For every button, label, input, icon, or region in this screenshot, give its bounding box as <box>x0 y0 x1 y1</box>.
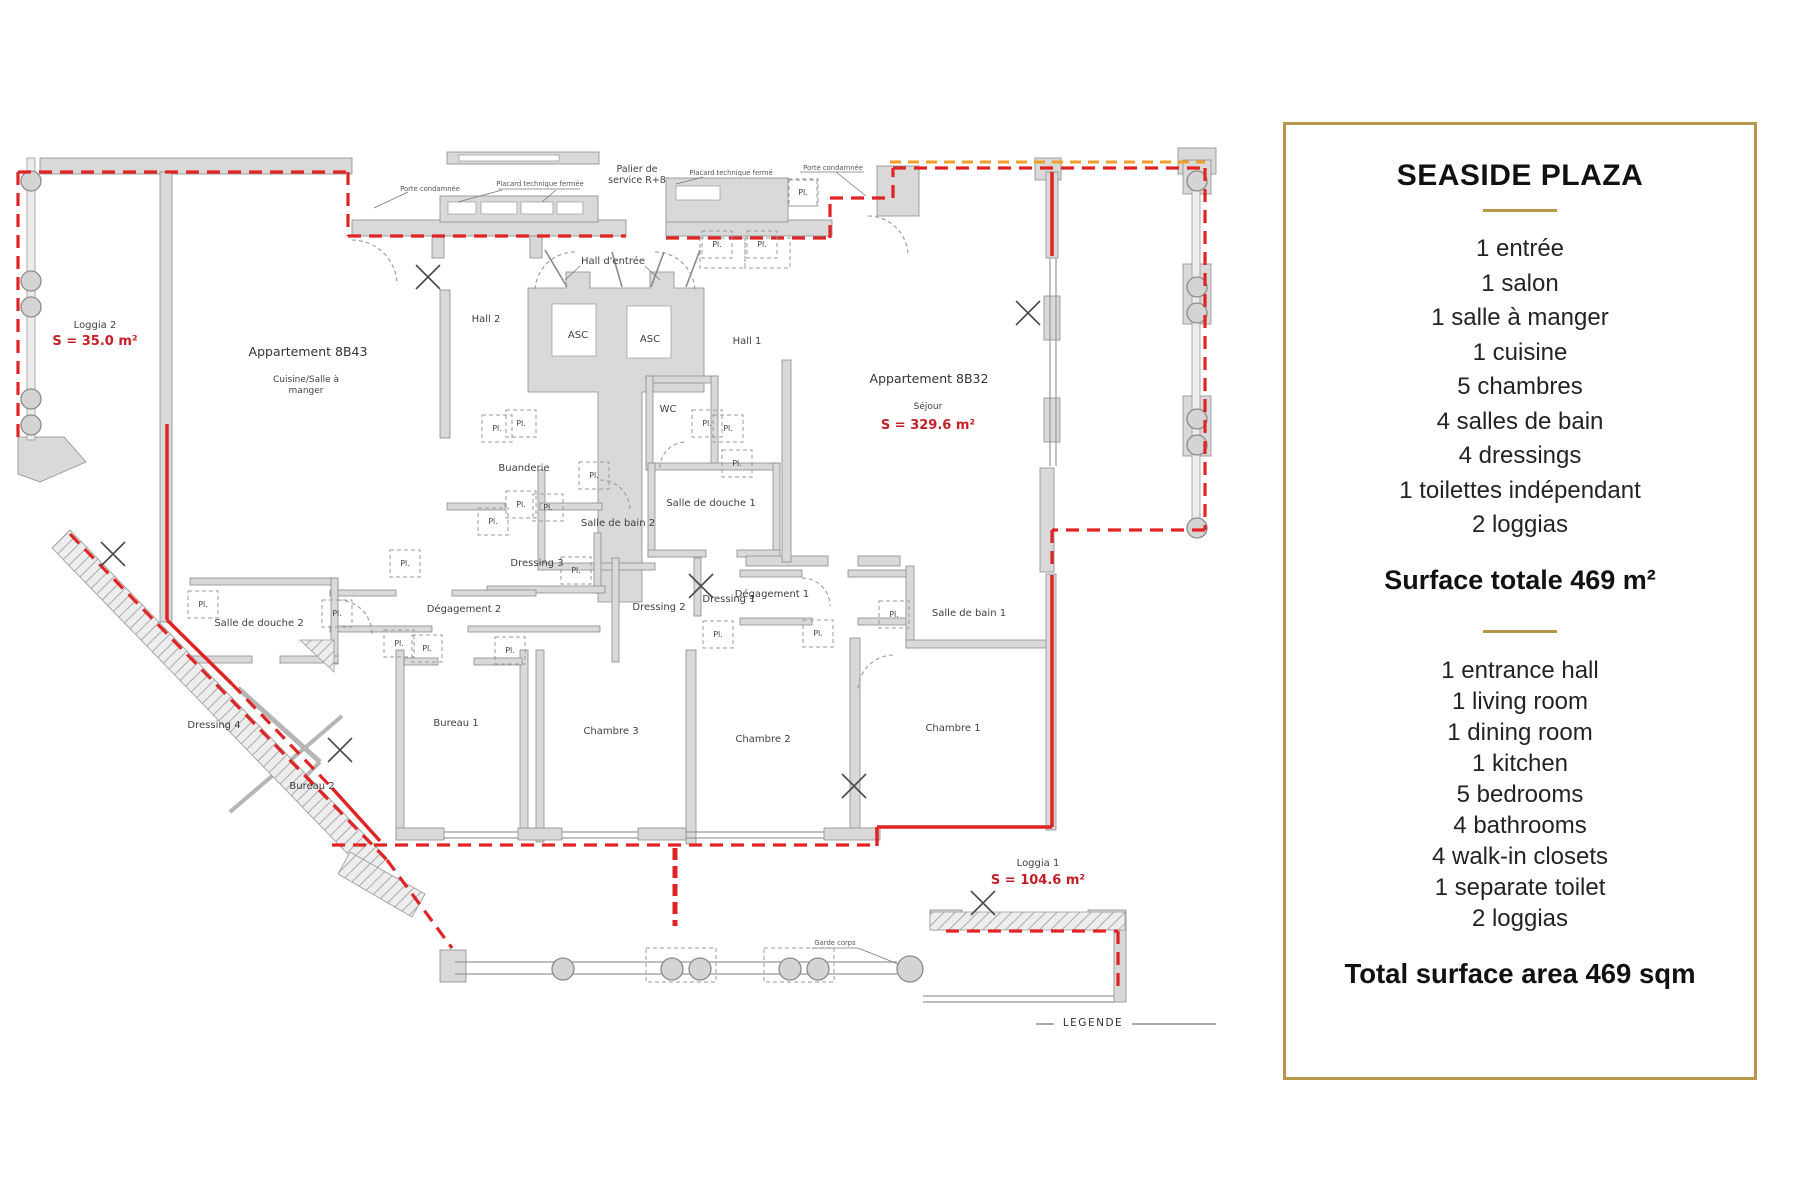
info-panel: SEASIDE PLAZA 1 entrée 1 salon 1 salle à… <box>1283 122 1757 1080</box>
room-label-asc: ASC <box>640 334 660 345</box>
apartment-label-appartement-8b43: Appartement 8B43 <box>249 344 368 359</box>
room-label-hall-2: Hall 2 <box>472 314 501 325</box>
feature-list-english: 1 entrance hall 1 living room 1 dining r… <box>1286 655 1754 934</box>
feature-item-en: 4 bathrooms <box>1286 810 1754 841</box>
closet-label-10: Pl. <box>543 503 553 512</box>
room-label-salle-de-bain-1: Salle de bain 1 <box>932 608 1006 619</box>
legend-title: LEGENDE <box>1063 1017 1123 1029</box>
feature-item-en: 4 walk-in closets <box>1286 841 1754 872</box>
area-label-s-104-6-m: S = 104.6 m² <box>991 873 1085 888</box>
closet-label-8: Pl. <box>589 471 599 480</box>
apartment-sublabel-appartement-8b32: Séjour <box>914 401 943 412</box>
room-label-loggia-1: Loggia 1 <box>1017 858 1060 869</box>
feature-item-en: 1 dining room <box>1286 717 1754 748</box>
closet-label-9: Pl. <box>516 500 526 509</box>
closet-label-21: Pl. <box>889 610 899 619</box>
closet-label-3: Pl. <box>492 424 502 433</box>
feature-item-fr: 4 salles de bain <box>1286 405 1754 440</box>
room-label-chambre-1: Chambre 1 <box>925 723 980 734</box>
feature-item-en: 1 entrance hall <box>1286 655 1754 686</box>
room-label-bureau-1: Bureau 1 <box>433 718 478 729</box>
closet-label-19: Pl. <box>713 630 723 639</box>
closet-label-11: Pl. <box>488 517 498 526</box>
room-label-dressing-2: Dressing 2 <box>632 602 685 613</box>
annotation-porte-condamne-e: Porte condamnée <box>400 185 460 193</box>
room-label-dressing-4: Dressing 4 <box>187 720 240 731</box>
closet-label-20: Pl. <box>813 629 823 638</box>
area-label-s-329-6-m: S = 329.6 m² <box>881 418 975 433</box>
page: { "panel": { "title": "SEASIDE PLAZA", "… <box>0 0 1799 1200</box>
room-label-chambre-2: Chambre 2 <box>735 734 790 745</box>
annotation-placard-technique-ferme: Placard technique fermé <box>689 169 772 177</box>
room-label-hall-1: Hall 1 <box>733 336 762 347</box>
closet-label-12: Pl. <box>400 559 410 568</box>
service-landing-label: Palier deservice R+8 <box>608 164 666 186</box>
room-label-salle-de-douche-2: Salle de douche 2 <box>214 618 303 629</box>
feature-item-fr: 1 cuisine <box>1286 336 1754 371</box>
apartment-label-appartement-8b32: Appartement 8B32 <box>870 371 989 386</box>
feature-item-en: 1 living room <box>1286 686 1754 717</box>
room-label-bureau-2: Bureau 2 <box>289 781 334 792</box>
room-label-de-gagement-1: Dégagement 1 <box>735 588 810 600</box>
annotation-garde-corps: Garde corps <box>814 939 856 947</box>
closet-label-13: Pl. <box>571 566 581 575</box>
feature-item-fr: 4 dressings <box>1286 439 1754 474</box>
feature-item-en: 1 separate toilet <box>1286 872 1754 903</box>
room-label-salle-de-bain-2: Salle de bain 2 <box>581 518 655 529</box>
total-surface-area: Total surface area 469 sqm <box>1286 958 1754 990</box>
x-mark <box>416 265 440 289</box>
feature-item-fr: 1 toilettes indépendant <box>1286 474 1754 509</box>
closet-label-16: Pl. <box>394 639 404 648</box>
room-label-de-gagement-2: Dégagement 2 <box>427 603 502 615</box>
area-label-s-35-0-m: S = 35.0 m² <box>52 334 137 349</box>
closet-label-15: Pl. <box>198 600 208 609</box>
closet-label-0: Pl. <box>712 240 722 249</box>
annotation-porte-condamne-e: Porte condamnée <box>803 164 863 172</box>
feature-list-french: 1 entrée 1 salon 1 salle à manger 1 cuis… <box>1286 232 1754 543</box>
room-label-chambre-3: Chambre 3 <box>583 726 638 737</box>
feature-item-fr: 1 salon <box>1286 267 1754 302</box>
room-label-dressing-3: Dressing 3 <box>510 558 563 569</box>
feature-item-en: 2 loggias <box>1286 903 1754 934</box>
feature-item-fr: 1 salle à manger <box>1286 301 1754 336</box>
closet-label-14: Pl. <box>332 609 342 618</box>
closet-label-6: Pl. <box>723 424 733 433</box>
gold-divider-top <box>1483 209 1557 212</box>
feature-item-fr: 1 entrée <box>1286 232 1754 267</box>
closet-label-18: Pl. <box>505 646 515 655</box>
gold-divider-middle <box>1483 630 1557 633</box>
closet-label-17: Pl. <box>422 644 432 653</box>
feature-item-en: 5 bedrooms <box>1286 779 1754 810</box>
x-mark <box>1016 301 1040 325</box>
closet-label-1: Pl. <box>757 240 767 249</box>
room-label-buanderie: Buanderie <box>498 463 549 474</box>
x-mark <box>101 542 125 566</box>
x-mark <box>971 891 995 915</box>
closet-label-7: Pl. <box>732 459 742 468</box>
x-mark <box>328 738 352 762</box>
closet-label-5: Pl. <box>702 419 712 428</box>
panel-title: SEASIDE PLAZA <box>1286 159 1754 193</box>
closet-label-4: Pl. <box>516 419 526 428</box>
garde-corps <box>455 948 1114 1002</box>
closet-label-2: Pl. <box>798 188 808 197</box>
apartment-sublabel-appartement-8b43: Cuisine/Salle àmanger <box>273 375 339 396</box>
room-label-loggia-2: Loggia 2 <box>74 320 117 331</box>
feature-item-fr: 5 chambres <box>1286 370 1754 405</box>
annotation-placard-technique-ferme-e: Placard technique fermée <box>496 180 584 188</box>
room-label-asc: ASC <box>568 330 588 341</box>
room-label-wc: WC <box>660 404 677 415</box>
room-label-hall-d-entre-e: Hall d'entrée <box>581 255 645 267</box>
feature-item-fr: 2 loggias <box>1286 508 1754 543</box>
room-label-salle-de-douche-1: Salle de douche 1 <box>666 498 755 509</box>
feature-item-en: 1 kitchen <box>1286 748 1754 779</box>
surface-totale: Surface totale 469 m² <box>1286 565 1754 596</box>
